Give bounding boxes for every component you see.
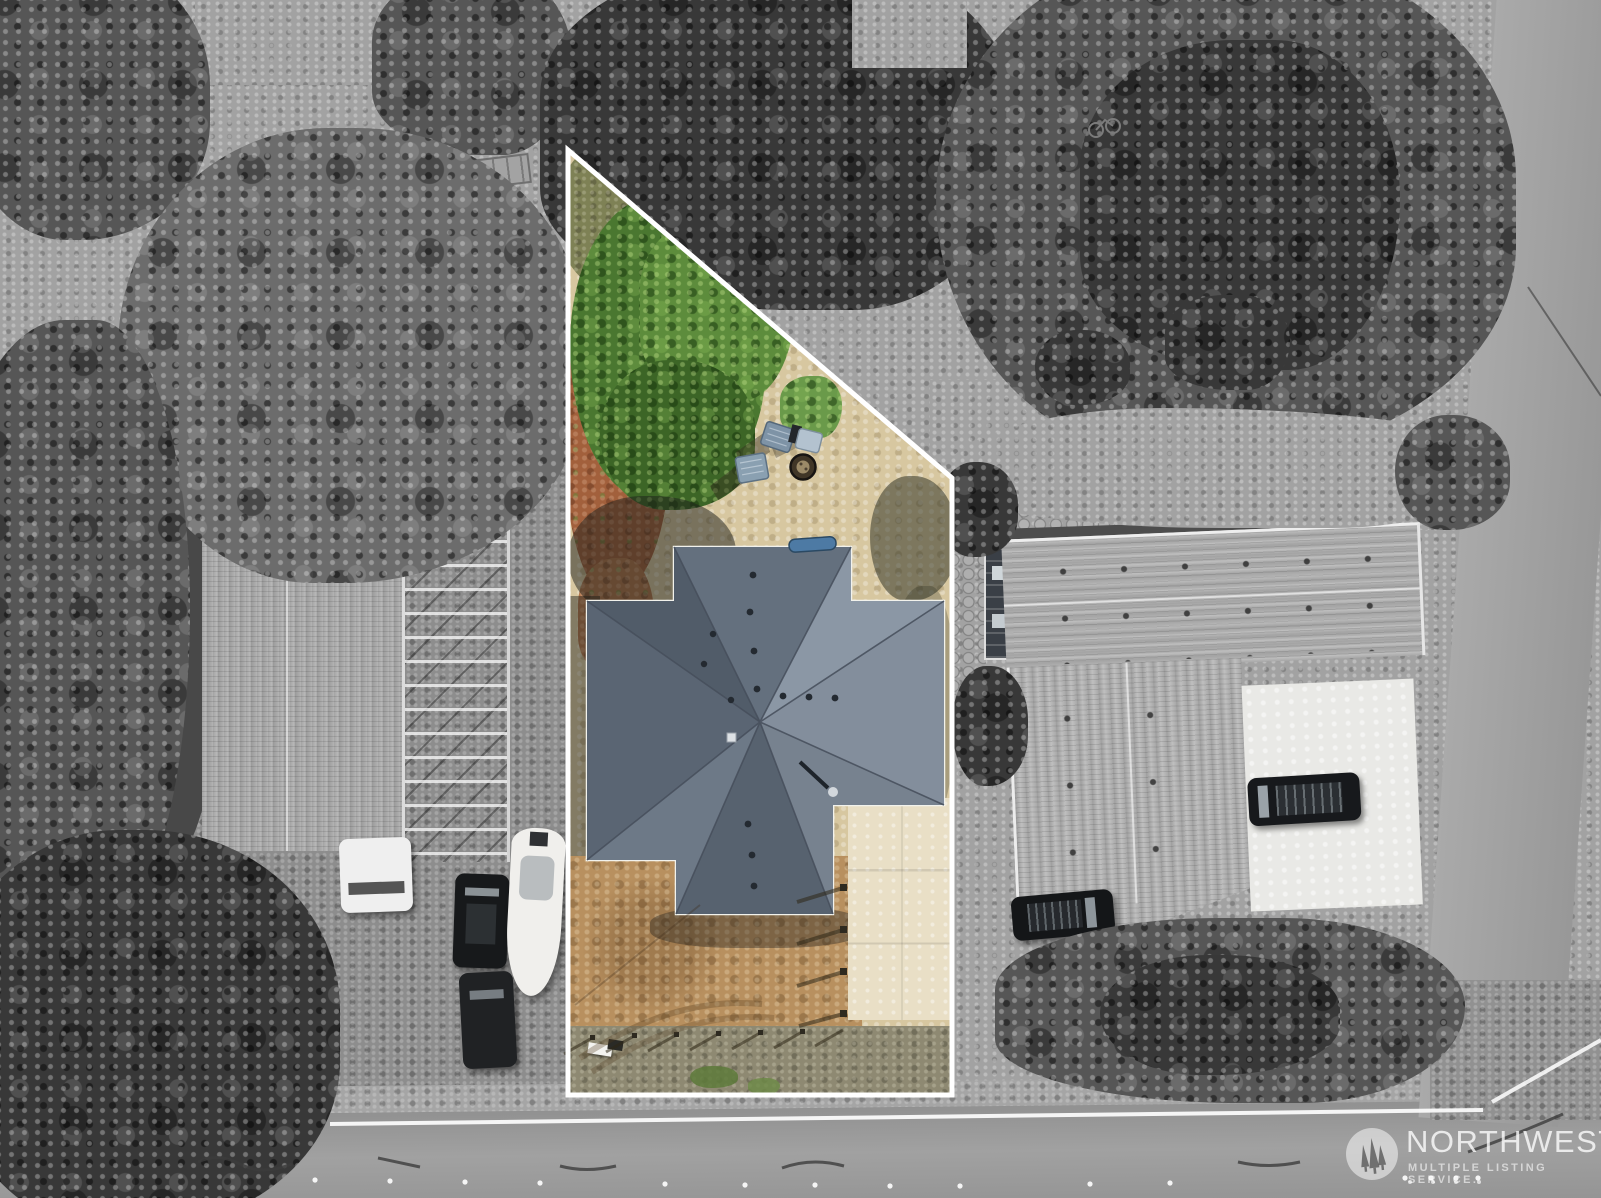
dot	[1431, 1180, 1435, 1184]
chimney	[727, 733, 736, 742]
detail-overlay	[0, 0, 1601, 1198]
cable-shadow	[1528, 287, 1601, 396]
watermark-dots	[1408, 1180, 1528, 1184]
nwmls-logo-icon	[1346, 1128, 1398, 1180]
subject-house-roof	[587, 536, 944, 914]
bicycle	[1089, 119, 1120, 137]
roof-pipe-cap	[828, 787, 838, 797]
dot	[1454, 1180, 1458, 1184]
three-pines-icon	[1346, 1128, 1398, 1180]
driveway-tire-tracks	[575, 905, 774, 1072]
dot	[1408, 1180, 1412, 1184]
blue-canoe	[789, 536, 837, 552]
mls-watermark: NORTHWEST MULTIPLE LISTING SERVICE.	[1340, 1118, 1601, 1198]
dot	[1477, 1180, 1481, 1184]
watermark-brand: NORTHWEST	[1406, 1124, 1601, 1160]
patio-chairs-and-firepit	[710, 421, 823, 500]
aerial-photo-stage: NORTHWEST MULTIPLE LISTING SERVICE.	[0, 0, 1601, 1198]
road-reflector-dots	[312, 1175, 1480, 1188]
